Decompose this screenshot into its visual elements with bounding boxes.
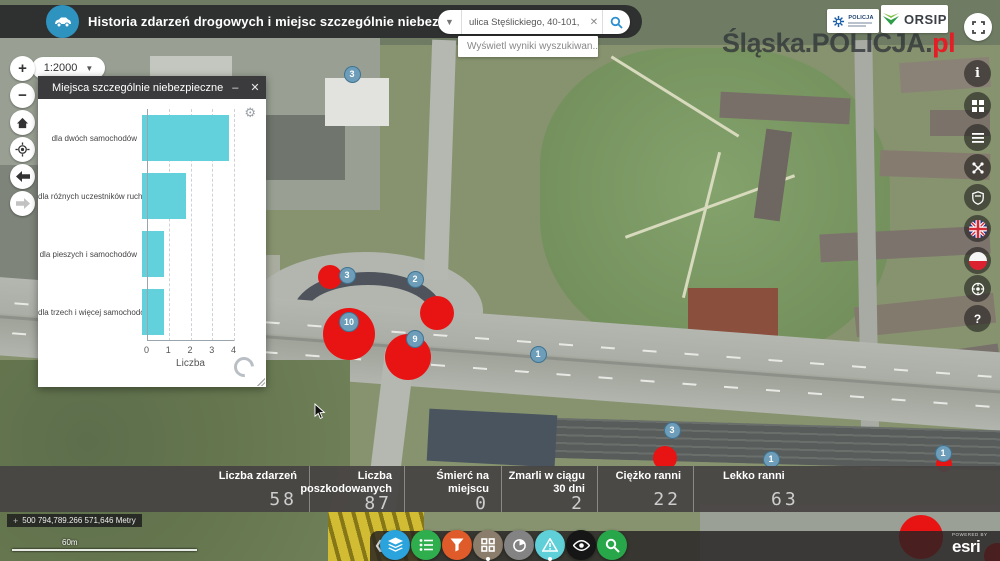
stat-label: Lekko ranni	[723, 470, 785, 483]
chart-category-label: dla pieszych i samochodów	[38, 250, 142, 259]
panel-header[interactable]: Miejsca szczególnie niebezpieczne – ✕	[38, 76, 266, 99]
back-button[interactable]	[10, 164, 35, 189]
stat-cell: Zmarli w ciągu 30 dni2	[502, 466, 598, 512]
stat-value: 63	[771, 491, 799, 509]
sidebar-apps-button[interactable]	[964, 92, 991, 119]
stat-label: Ciężko ranni	[616, 470, 681, 483]
charts-button[interactable]	[504, 530, 534, 560]
cluster-count-badge[interactable]: 2	[407, 271, 424, 288]
danger-places-panel: Miejsca szczególnie niebezpieczne – ✕ dl…	[38, 76, 266, 387]
stat-label: Liczba poszkodowanych	[300, 470, 392, 495]
orsip-label: ORSIP	[904, 12, 947, 27]
close-panel-button[interactable]: ✕	[247, 81, 262, 94]
layers-icon	[387, 537, 404, 553]
language-polish-button[interactable]	[964, 247, 991, 274]
active-tool-dot	[548, 557, 552, 561]
app-header: Historia zdarzeń drogowych i miejsc szcz…	[0, 5, 642, 38]
cluster-count-badge[interactable]: 3	[344, 66, 361, 83]
mouse-cursor	[314, 403, 326, 425]
map-search-button[interactable]	[597, 530, 627, 560]
gear-icon[interactable]: ⚙	[244, 106, 256, 121]
app-logo	[46, 5, 79, 38]
stat-cell: Lekko ranni63	[694, 466, 1000, 512]
search-input[interactable]	[462, 17, 586, 28]
panel-title: Miejsca szczególnie niebezpieczne	[52, 82, 223, 94]
cluster-count-badge[interactable]: 9	[406, 330, 424, 348]
filter-funnel-icon	[450, 538, 464, 552]
panel-resize-handle[interactable]	[256, 377, 265, 386]
basemap-grid-icon	[481, 538, 495, 552]
chevron-down-icon: ▼	[85, 64, 93, 73]
stat-value: 0	[475, 495, 489, 513]
stat-label: Śmierć na miejscu	[411, 470, 489, 495]
stat-cell: Liczba zdarzeń58	[0, 466, 310, 512]
legend-list-icon	[419, 538, 434, 552]
cluster-count-badge[interactable]: 10	[339, 312, 359, 332]
search-box: ▼ ✕	[438, 10, 630, 34]
minimize-panel-button[interactable]: –	[229, 82, 241, 94]
sidebar-badge-button[interactable]	[964, 184, 991, 211]
sidebar-drone-button[interactable]	[964, 154, 991, 181]
stat-label: Liczba zdarzeń	[219, 470, 297, 483]
locate-icon	[15, 142, 30, 157]
locate-button[interactable]	[10, 137, 35, 162]
stat-cell: Śmierć na miejscu0	[405, 466, 502, 512]
shield-icon	[972, 191, 984, 205]
bar-chart: dla dwóch samochodówdla różnych uczestni…	[38, 99, 266, 385]
chart-category-label: dla różnych uczestników ruchu	[38, 192, 142, 201]
info-icon: i	[975, 66, 980, 81]
orsip-logo[interactable]: ORSIP	[881, 5, 948, 33]
danger-places-button[interactable]	[535, 530, 565, 560]
search-suggestion[interactable]: Wyświetl wyniki wyszukiwan...	[458, 36, 598, 57]
orsip-chevron-icon	[882, 11, 900, 27]
zoom-out-button[interactable]: −	[10, 83, 35, 108]
language-english-button[interactable]	[964, 215, 991, 242]
cluster-count-badge[interactable]: 3	[339, 267, 356, 284]
policja-subtext	[848, 22, 872, 24]
fullscreen-icon	[972, 21, 985, 34]
pie-chart-icon	[512, 538, 527, 553]
chart-category-label: dla trzech i więcej samochodów	[38, 308, 142, 317]
cluster-count-badge[interactable]: 1	[530, 346, 547, 363]
cluster-count-badge[interactable]: 1	[935, 445, 952, 462]
sidebar-compass-button[interactable]	[964, 275, 991, 302]
help-icon: ?	[974, 312, 981, 326]
filter-button[interactable]	[442, 530, 472, 560]
home-button[interactable]	[10, 110, 35, 135]
grid-icon	[972, 100, 984, 112]
chart-tick-label: 3	[209, 345, 214, 355]
esri-attribution: POWERED BY esri	[952, 533, 1000, 555]
stat-value: 87	[364, 495, 392, 513]
policja-subtext	[848, 25, 866, 27]
policja-star-icon	[832, 15, 845, 28]
stat-cell: Ciężko ranni22	[598, 466, 694, 512]
app-window: 3321091311 Śląska.POLICJA.pl POLICJA ORS…	[0, 0, 1000, 561]
powered-by-label: POWERED BY	[952, 533, 1000, 538]
chart-tick-label: 0	[144, 345, 149, 355]
stats-bar: Liczba zdarzeń58Liczba poszkodowanych87Ś…	[0, 466, 1000, 512]
active-tool-dot	[486, 557, 490, 561]
basemap-button[interactable]	[473, 530, 503, 560]
scalebar-label: 60m	[62, 538, 78, 547]
warning-triangle-icon	[542, 538, 558, 552]
accident-cluster[interactable]	[420, 296, 454, 330]
cluster-count-badge[interactable]: 1	[763, 451, 780, 468]
layers-button[interactable]	[380, 530, 410, 560]
home-icon	[16, 117, 29, 129]
list-icon	[972, 133, 984, 143]
policja-logo[interactable]: POLICJA	[827, 9, 879, 33]
chart-category-label: dla dwóch samochodów	[38, 134, 142, 143]
forward-button[interactable]	[10, 191, 35, 216]
chart-tick-label: 4	[231, 345, 236, 355]
arrow-left-icon	[16, 171, 30, 182]
chart-tick-label: 1	[166, 345, 171, 355]
search-button[interactable]	[602, 10, 630, 34]
drone-icon	[971, 161, 985, 175]
search-dropdown-caret[interactable]: ▼	[438, 10, 462, 34]
fullscreen-button[interactable]	[964, 13, 992, 41]
cluster-count-badge[interactable]: 3	[664, 422, 681, 439]
compass-icon	[971, 282, 985, 296]
sidebar-info-button[interactable]: i	[964, 60, 991, 87]
stat-value: 22	[653, 491, 681, 509]
esri-logo: esri	[952, 538, 1000, 555]
stat-cell: Liczba poszkodowanych87	[310, 466, 405, 512]
stat-label: Zmarli w ciągu 30 dni	[508, 470, 585, 495]
coordinates-value: 500 794,789.266 571,646 Metry	[22, 516, 135, 525]
chart-tick-label: 2	[188, 345, 193, 355]
uk-flag-icon	[969, 220, 987, 238]
policja-label: POLICJA	[848, 15, 873, 21]
search-icon	[610, 16, 623, 29]
stat-value: 58	[269, 491, 297, 509]
eye-icon	[573, 540, 590, 551]
legend-button[interactable]	[411, 530, 441, 560]
visibility-button[interactable]	[566, 530, 596, 560]
clear-search-icon[interactable]: ✕	[586, 17, 602, 28]
zoom-in-button[interactable]: +	[10, 56, 35, 81]
sidebar-help-button[interactable]: ?	[964, 305, 991, 332]
stat-value: 2	[571, 495, 585, 513]
arrow-right-icon	[16, 198, 30, 209]
car-icon	[53, 15, 73, 29]
crosshair-icon: +	[13, 516, 18, 526]
coordinates-readout: + 500 794,789.266 571,646 Metry	[7, 514, 142, 527]
scalebar	[12, 549, 197, 551]
search-icon	[605, 538, 620, 553]
poland-flag-icon	[969, 252, 987, 270]
chart-xlabel: Liczba	[147, 358, 234, 369]
sidebar-list-button[interactable]	[964, 124, 991, 151]
chart-axis	[147, 109, 234, 341]
scale-value: 1:2000	[44, 62, 78, 74]
